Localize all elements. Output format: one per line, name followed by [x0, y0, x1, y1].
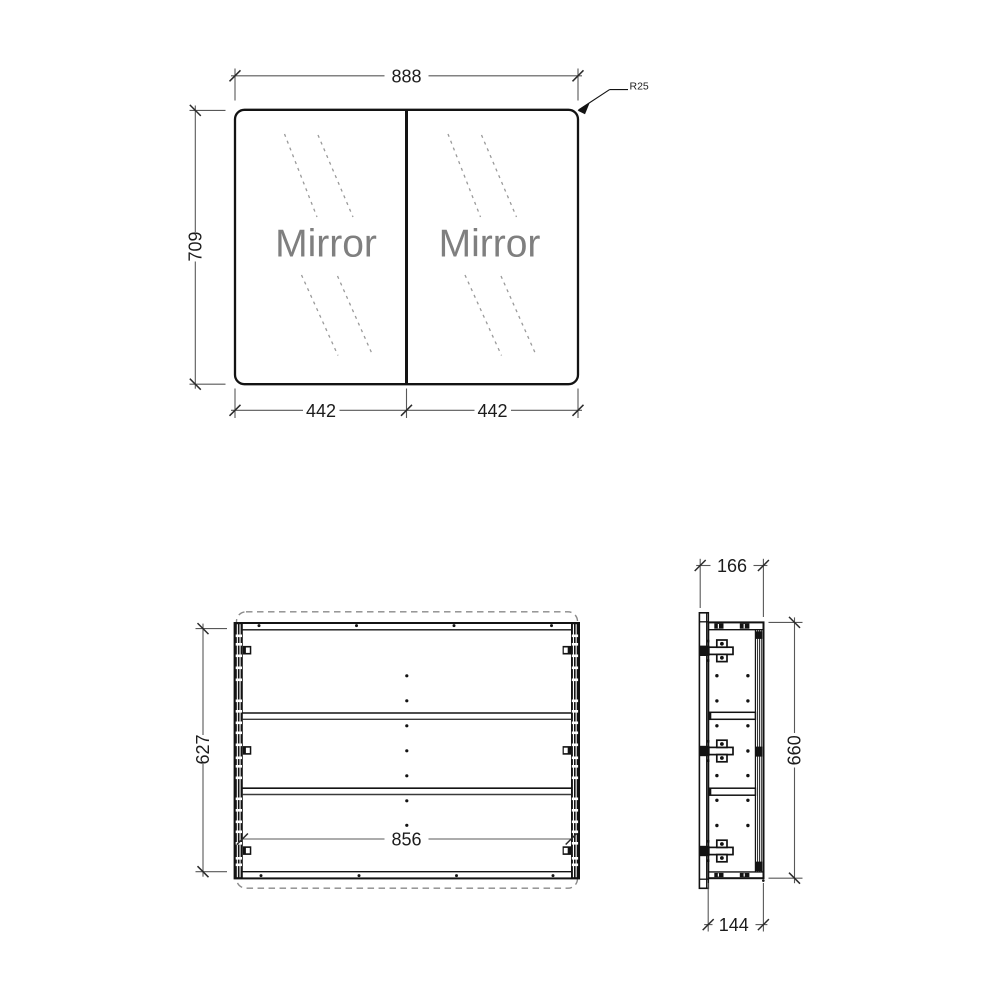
- svg-text:Mirror: Mirror: [439, 223, 541, 266]
- svg-text:442: 442: [477, 401, 507, 421]
- svg-text:709: 709: [185, 231, 205, 261]
- svg-text:888: 888: [391, 66, 421, 86]
- svg-text:627: 627: [193, 734, 213, 764]
- svg-text:166: 166: [717, 556, 747, 576]
- svg-text:Mirror: Mirror: [275, 223, 377, 266]
- svg-text:856: 856: [391, 829, 421, 849]
- svg-text:R25: R25: [630, 80, 649, 92]
- svg-text:442: 442: [306, 401, 336, 421]
- svg-text:144: 144: [719, 915, 749, 935]
- svg-text:660: 660: [785, 735, 805, 765]
